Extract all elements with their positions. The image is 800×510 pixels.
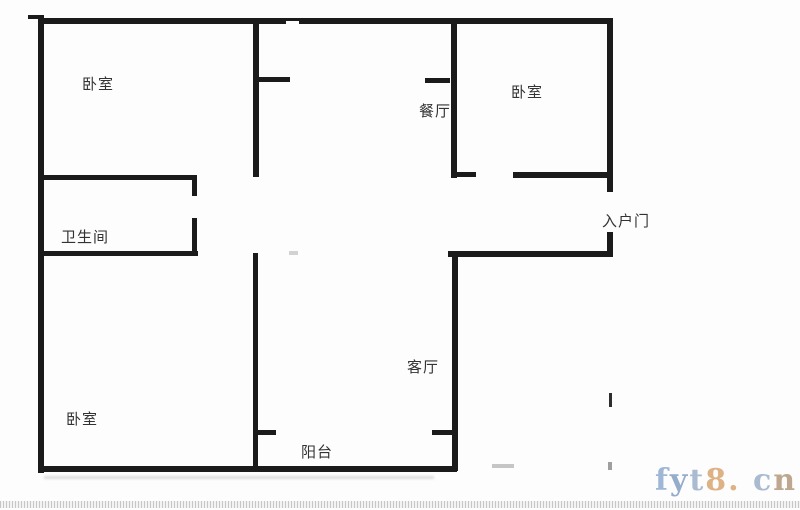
wall-bottom-shadow <box>44 476 434 479</box>
room-label-bedroom-bottom-left: 卧室 <box>66 412 98 427</box>
wall-dining-stub-right <box>425 78 450 83</box>
wall-top-notch <box>286 21 299 24</box>
wall-dining-stub-left <box>256 77 290 82</box>
wall-bedroomTR-bottom-right <box>513 172 612 178</box>
wall-balcony-stub-left <box>256 430 276 435</box>
wall-corridor-left-upper <box>253 18 259 177</box>
room-label-bathroom: 卫生间 <box>61 230 109 245</box>
wall-left <box>38 18 44 473</box>
room-label-entry-door: 入户门 <box>602 214 650 229</box>
bottom-artifact-strip <box>0 501 800 508</box>
wall-remnant-right-tick <box>609 393 612 407</box>
wall-bottom <box>38 466 457 472</box>
wall-remnant-corridor-smudge <box>289 251 298 255</box>
floorplan-canvas: 卧室 卫生间 餐厅 卧室 入户门 客厅 卧室 阳台 fyt8. cn <box>0 0 800 510</box>
wall-right-upper <box>607 18 613 192</box>
wall-remnant-bottom-smudge <box>492 464 514 468</box>
wall-bathroom-right-lower <box>192 218 197 255</box>
room-label-bedroom-top-left: 卧室 <box>82 77 114 92</box>
room-label-bedroom-top-right: 卧室 <box>511 85 543 100</box>
watermark-fyt8-logo: fyt8. cn <box>655 466 797 496</box>
wall-corridor-right-lower <box>452 255 458 471</box>
room-label-balcony: 阳台 <box>301 445 333 460</box>
wall-corridor-right-upper <box>451 18 457 178</box>
wall-balcony-stub-right <box>432 430 452 435</box>
wall-corridor-left-lower <box>253 253 258 471</box>
room-label-living: 客厅 <box>407 360 439 375</box>
wall-bathroom-bottom <box>38 251 198 256</box>
wall-top <box>38 18 613 24</box>
room-label-dining: 餐厅 <box>419 104 451 119</box>
wall-bathroom-right-upper <box>192 175 197 196</box>
wall-bathroom-top <box>38 175 197 180</box>
wall-bedroomTR-bottom-left-stub <box>451 172 476 177</box>
wall-remnant-right-lower <box>608 462 612 470</box>
wall-entry-bottom <box>448 251 612 257</box>
